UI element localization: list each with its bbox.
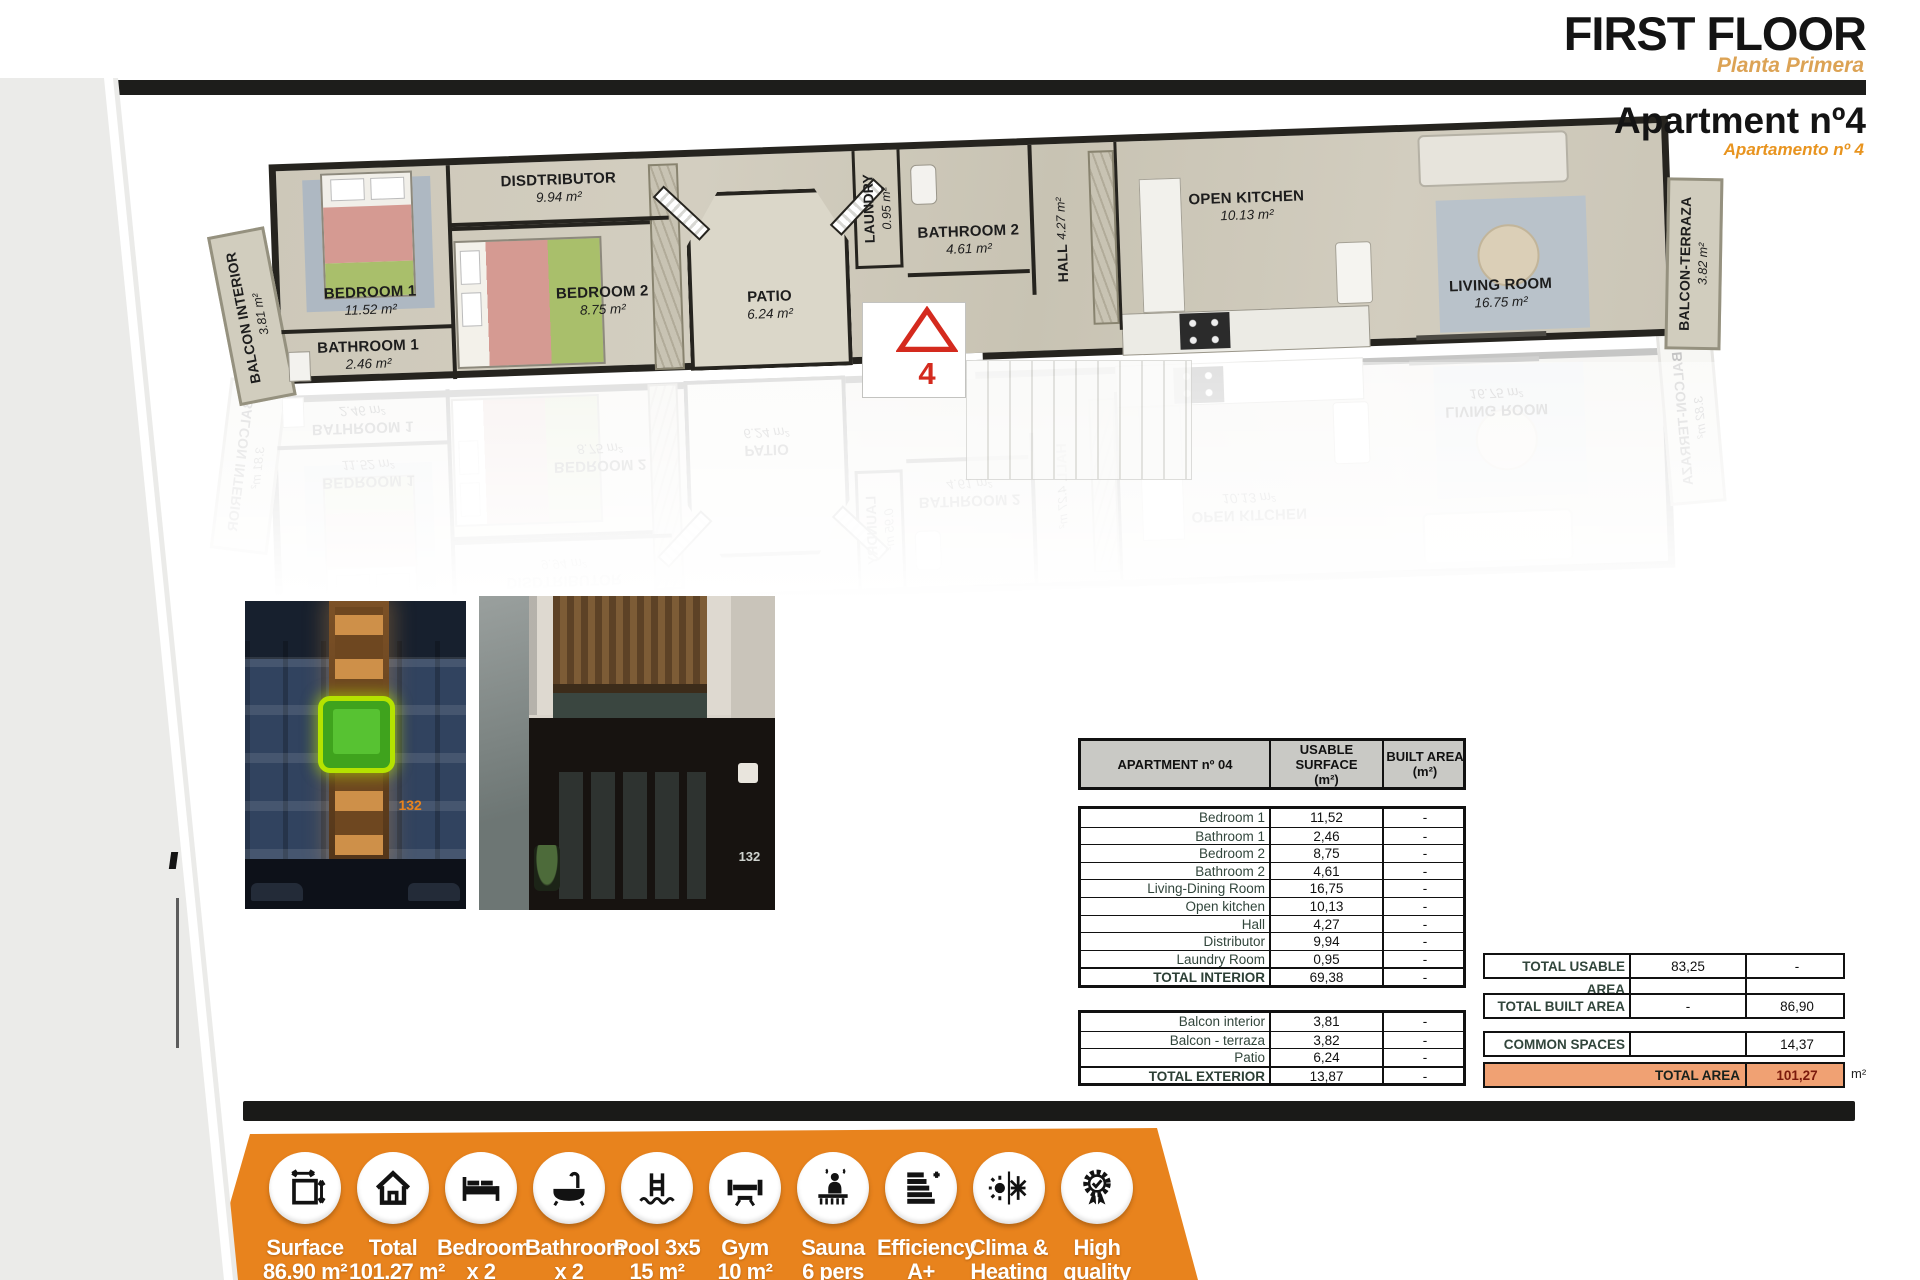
unit-number: 4 xyxy=(896,359,958,389)
room-label: BEDROOM 1 xyxy=(324,282,417,302)
room-bathroom-2: BATHROOM 24.61 m² xyxy=(906,155,1030,273)
room-area: 4.27 m² xyxy=(1053,197,1068,240)
car-graphic xyxy=(251,883,303,901)
table-row: Distributor9,94- xyxy=(1081,932,1463,950)
pool-icon xyxy=(635,1166,679,1210)
room-area: 3.82 m² xyxy=(1696,243,1711,286)
banner-item-bedroom: Bedroom x 2 xyxy=(437,1152,525,1280)
room-living-room: LIVING ROOM16.75 m² xyxy=(1375,124,1622,346)
gym-icon xyxy=(723,1166,767,1210)
scan-artifact-line xyxy=(176,898,179,1048)
room-bedroom-2: BEDROOM 28.75 m² xyxy=(451,220,674,380)
banner-item-bathroom: Bathroom x 2 xyxy=(525,1152,613,1280)
side-wall-graphic xyxy=(479,596,529,910)
building-photo-night: 132 xyxy=(245,601,466,909)
room-area: 9.94 m² xyxy=(450,186,668,209)
room-label: DISDTRIBUTOR xyxy=(500,169,616,190)
neighbor-building-graphic xyxy=(731,596,775,722)
room-label: BATHROOM 1 xyxy=(317,336,419,357)
kitchen-counter-graphic xyxy=(1121,305,1370,356)
room-hall: HALL 4.27 m² xyxy=(1031,143,1092,337)
table-row: Bathroom 12,46- xyxy=(1081,827,1463,845)
table-row-total: TOTAL EXTERIOR13,87- xyxy=(1081,1066,1463,1084)
area-table-header: APARTMENT nº 04 USABLE SURFACE(m²) BUILT… xyxy=(1078,738,1466,790)
room-label: OPEN KITCHEN xyxy=(1188,187,1304,208)
surface-icon xyxy=(283,1166,327,1210)
cooktop-graphic xyxy=(1179,312,1230,350)
room-label: LIVING ROOM xyxy=(1449,275,1553,296)
floor-title: FIRST FLOOR xyxy=(1564,6,1866,61)
banner-item-efficiency: Efficiency A+ xyxy=(877,1152,965,1280)
unit-marker: 4 xyxy=(896,306,958,389)
banner-item-surface: Surface 86.90 m² xyxy=(261,1152,349,1280)
media-console-graphic xyxy=(1416,331,1546,341)
bathtub-icon xyxy=(547,1166,591,1210)
table-row: Balcon interior3,81- xyxy=(1081,1013,1463,1031)
total-area-unit: m² xyxy=(1851,1066,1866,1081)
floor-subtitle: Planta Primera xyxy=(1717,54,1864,78)
room-patio: PATIO6.24 m² xyxy=(685,187,853,371)
table-row: Bedroom 111,52- xyxy=(1081,809,1463,827)
table-row: Hall4,27- xyxy=(1081,915,1463,933)
balcony-glass-graphic xyxy=(553,693,707,718)
room-label: HALL xyxy=(1054,244,1071,283)
ghost-fade xyxy=(180,362,1740,612)
banner-item-sauna: Sauna 6 pers xyxy=(789,1152,877,1280)
room-label: BATHROOM 2 xyxy=(917,221,1019,242)
room-label: PATIO xyxy=(747,287,792,306)
table-row: Patio6,24- xyxy=(1081,1048,1463,1066)
house-icon xyxy=(371,1166,415,1210)
room-label: BEDROOM 2 xyxy=(556,282,649,302)
table-row: Laundry Room0,95- xyxy=(1081,950,1463,968)
table-row: Bathroom 24,61- xyxy=(1081,862,1463,880)
pillow-graphic xyxy=(370,177,405,200)
room-bathroom-1: BATHROOM 12.46 m² xyxy=(281,324,455,385)
room-area: 6.24 m² xyxy=(689,303,851,324)
table-row: Balcon - terraza3,82- xyxy=(1081,1031,1463,1049)
table-row: Living-Dining Room16,75- xyxy=(1081,879,1463,897)
sauna-icon xyxy=(811,1166,855,1210)
toilet-graphic xyxy=(910,164,937,205)
room-open-kitchen: OPEN KITCHEN10.13 m² xyxy=(1115,133,1380,356)
stairwell-graphic xyxy=(966,360,1192,480)
triangle-marker-icon xyxy=(896,306,958,354)
banner-item-total: Total 101.27 m² xyxy=(349,1152,437,1280)
ground-floor-graphic: 132 xyxy=(529,718,775,910)
car-graphic xyxy=(408,883,460,901)
quality-award-icon xyxy=(1075,1166,1119,1210)
pillow-graphic xyxy=(461,292,482,327)
summary-built-area: TOTAL BUILT AREA-86,90 xyxy=(1483,993,1845,1019)
header-divider-bar xyxy=(106,80,1866,95)
building-photo-facade: 132 xyxy=(479,596,775,910)
banner-item-quality: High quality xyxy=(1053,1152,1141,1280)
building-number: 132 xyxy=(739,849,761,864)
table-row-total: TOTAL INTERIOR69,38- xyxy=(1081,967,1463,985)
climate-icon xyxy=(987,1166,1031,1210)
summary-usable-area: TOTAL USABLE AREA83,25- xyxy=(1483,953,1845,979)
banner-item-pool: Pool 3x5 15 m² xyxy=(613,1152,701,1280)
wood-balcony-graphic xyxy=(553,596,707,693)
sofa-graphic xyxy=(1417,130,1569,187)
room-area: 0.95 m² xyxy=(879,186,894,229)
table-row: Open kitchen10,13- xyxy=(1081,897,1463,915)
room-laundry: LAUNDRY 0.95 m² xyxy=(851,149,903,269)
amenity-banner: Surface 86.90 m² Total 101.27 m² Bedroom… xyxy=(205,1128,1210,1280)
building-number: 132 xyxy=(398,797,421,813)
summary-total-area: TOTAL AREA101,27 xyxy=(1483,1062,1845,1088)
room-area: 2.46 m² xyxy=(282,353,454,374)
blanket-graphic xyxy=(323,205,413,264)
table-row: Bedroom 28,75- xyxy=(1081,844,1463,862)
column-header: APARTMENT nº 04 xyxy=(1081,741,1269,787)
highlight-window-graphic xyxy=(333,709,380,754)
apartment-subtitle: Apartamento nº 4 xyxy=(1724,140,1864,160)
room-label: LAUNDRY xyxy=(859,173,877,243)
apartment-highlight xyxy=(318,696,395,773)
brochure-page: FIRST FLOOR Planta Primera Apartment nº4… xyxy=(0,0,1920,1280)
area-table-exterior: Balcon interior3,81- Balcon - terraza3,8… xyxy=(1078,1010,1466,1086)
energy-efficiency-icon xyxy=(899,1166,943,1210)
bed-graphic xyxy=(320,170,416,299)
area-table-interior: Bedroom 111,52- Bathroom 12,46- Bedroom … xyxy=(1078,806,1466,988)
room-distributor: DISDTRIBUTOR9.94 m² xyxy=(449,158,669,224)
room-area: 10.13 m² xyxy=(1118,203,1376,227)
column-header: USABLE SURFACE(m²) xyxy=(1269,741,1382,787)
logo-plate-graphic xyxy=(738,763,758,783)
footer-divider-bar xyxy=(243,1101,1855,1121)
column-header: BUILT AREA(m²) xyxy=(1382,741,1466,787)
room-label: BALCON-TERRAZA xyxy=(1676,196,1694,330)
room-area: 4.61 m² xyxy=(909,239,1029,258)
pillow-graphic xyxy=(460,250,481,285)
plant-graphic xyxy=(534,845,560,891)
entrance-door-graphic xyxy=(559,772,706,898)
pillow-graphic xyxy=(330,178,365,201)
room-bedroom-1: BEDROOM 111.52 m² xyxy=(284,169,453,330)
banner-item-gym: Gym 10 m² xyxy=(701,1152,789,1280)
floor-plan: BALCON INTERIOR 3.81 m² BEDROOM 111.52 m… xyxy=(269,116,1676,385)
apartment-title: Apartment nº4 xyxy=(1614,100,1866,142)
banner-item-climate: Clima & Heating xyxy=(965,1152,1053,1280)
bed-icon xyxy=(459,1166,503,1210)
summary-common-spaces: COMMON SPACES14,37 xyxy=(1483,1031,1845,1057)
room-balcon-terraza: BALCON-TERRAZA 3.82 m² xyxy=(1664,177,1723,350)
fridge-graphic xyxy=(1335,241,1373,304)
room-area: 11.52 m² xyxy=(288,299,452,320)
